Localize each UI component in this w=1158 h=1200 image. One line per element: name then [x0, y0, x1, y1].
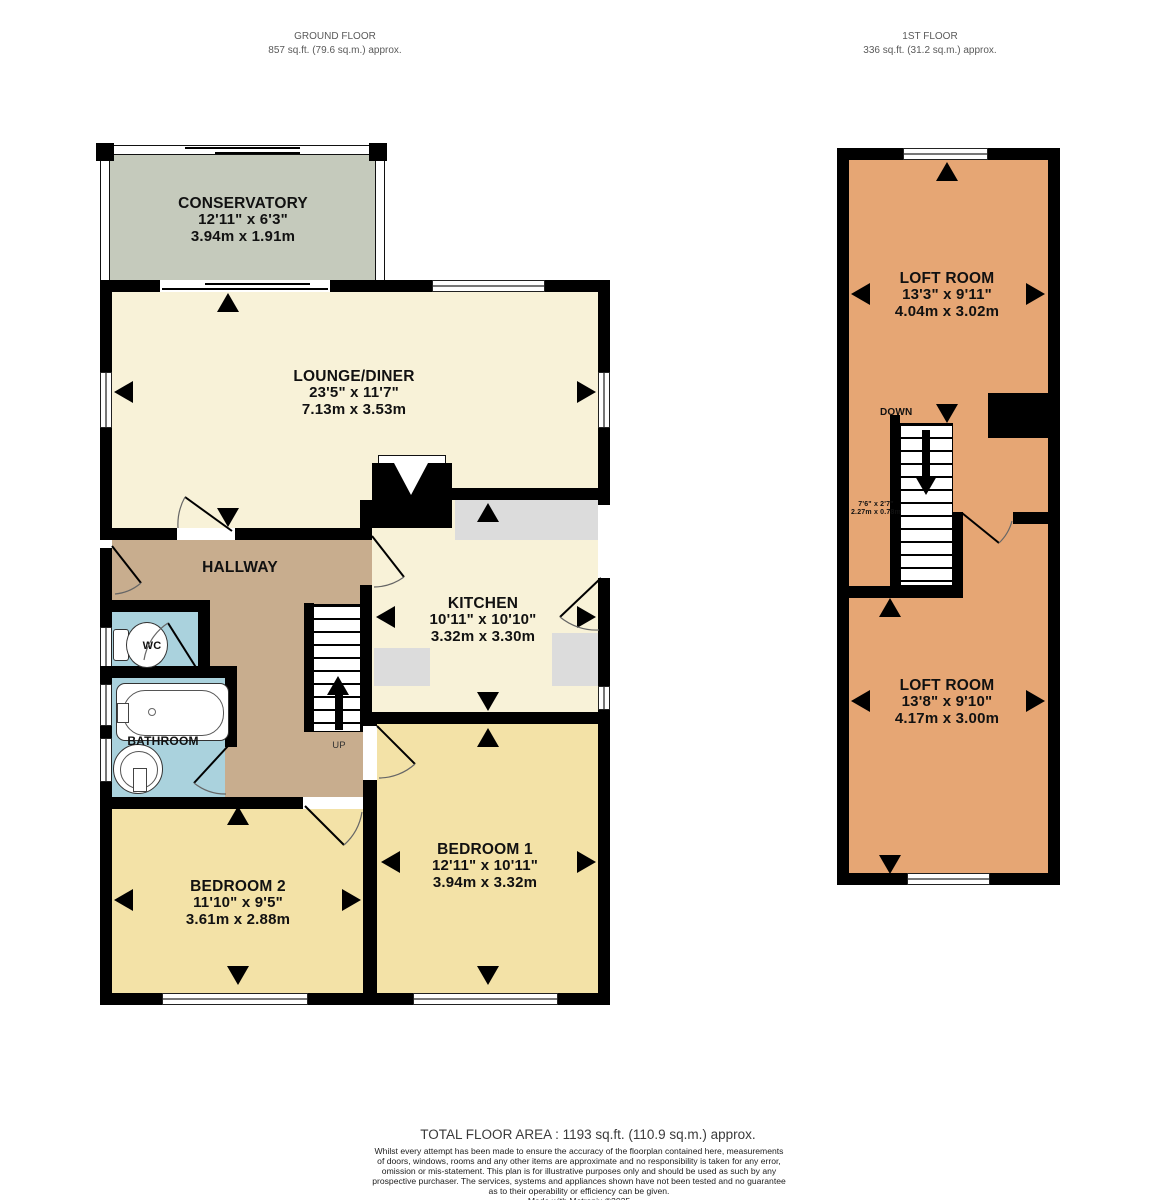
- room-dim-metric: 4.17m x 3.00m: [817, 711, 1077, 728]
- arrow-left-icon: [381, 851, 400, 873]
- wall: [450, 488, 598, 500]
- disclaimer-line: omission or mis-statement. This plan is …: [229, 1166, 929, 1176]
- window: [100, 372, 112, 428]
- back-door-opening: [598, 505, 610, 578]
- room-dim-metric: 4.04m x 3.02m: [817, 304, 1077, 321]
- up-label: UP: [322, 741, 356, 751]
- kitchen-counter: [374, 648, 430, 686]
- window: [903, 148, 988, 160]
- wall: [360, 500, 372, 534]
- sliding-door-line: [162, 288, 328, 290]
- arrow-right-icon: [342, 889, 361, 911]
- loft-stair-dim: 7'6" x 2'7" 2.27m x 0.78m: [838, 501, 914, 516]
- window: [598, 686, 610, 710]
- wall: [100, 600, 210, 612]
- arrow-right-icon: [1026, 690, 1045, 712]
- arrow-down-icon: [915, 476, 937, 495]
- total-floor-area: TOTAL FLOOR AREA : 1193 sq.ft. (110.9 sq…: [288, 1127, 888, 1142]
- window-mullion: [215, 152, 300, 154]
- floorplan-canvas: GROUND FLOOR 857 sq.ft. (79.6 sq.m.) app…: [0, 0, 1158, 1200]
- arrow-up-icon: [217, 293, 239, 312]
- bath-drain-icon: [148, 708, 156, 716]
- arrow-left-icon: [376, 606, 395, 628]
- room-dim-imperial: 11'10" x 9'5": [108, 895, 368, 912]
- conservatory-window-wall: [375, 145, 385, 292]
- room-name: BEDROOM 2: [108, 878, 368, 895]
- arrow-up-icon: [477, 503, 499, 522]
- credit-line: Made with Metropix ©2025: [229, 1196, 929, 1200]
- wall: [100, 666, 237, 678]
- stair-dim-imperial: 7'6" x 2'7": [838, 501, 914, 509]
- hallway-label: HALLWAY: [110, 559, 370, 576]
- first-floor-title: 1ST FLOOR: [730, 30, 1130, 44]
- stair-dim-metric: 2.27m x 0.78m: [838, 509, 914, 517]
- window: [598, 372, 610, 428]
- wall: [849, 586, 963, 598]
- ground-floor-area: 857 sq.ft. (79.6 sq.m.) approx.: [135, 44, 535, 58]
- room-dim-imperial: 12'11" x 6'3": [113, 212, 373, 229]
- room-dim-metric: 3.61m x 2.88m: [108, 912, 368, 929]
- wc-label: WC: [132, 640, 172, 652]
- window: [432, 280, 545, 292]
- down-label: DOWN: [880, 407, 936, 418]
- arrow-down-icon: [879, 855, 901, 874]
- bathroom-label: BATHROOM: [113, 735, 213, 748]
- sliding-door-line: [205, 283, 310, 285]
- window: [100, 738, 112, 782]
- window-mullion: [185, 147, 300, 149]
- arrow-down-icon: [217, 508, 239, 527]
- window: [162, 993, 308, 1005]
- first-floor-header: 1ST FLOOR 336 sq.ft. (31.2 sq.m.) approx…: [730, 30, 1130, 57]
- arrow-down-icon: [936, 404, 958, 423]
- door-opening: [177, 528, 235, 540]
- lounge-label: LOUNGE/DINER 23'5" x 11'7" 7.13m x 3.53m: [224, 368, 484, 418]
- door-opening: [303, 797, 363, 809]
- bath-taps-icon: [117, 703, 129, 723]
- arrow-up-icon: [936, 162, 958, 181]
- room-name: CONSERVATORY: [113, 195, 373, 212]
- window: [413, 993, 558, 1005]
- room-dim-imperial: 23'5" x 11'7": [224, 385, 484, 402]
- loft-chimney: [988, 393, 1048, 438]
- arrow-down-icon: [477, 966, 499, 985]
- window: [907, 873, 990, 885]
- arrow-up-icon: [327, 676, 349, 695]
- chimney-notch: [394, 463, 428, 495]
- wall: [837, 148, 849, 885]
- arrow-up-icon: [477, 728, 499, 747]
- arrow-up-icon: [227, 806, 249, 825]
- arrow-right-icon: [1026, 283, 1045, 305]
- disclaimer-line: prospective purchaser. The services, sys…: [229, 1176, 929, 1186]
- stair-arrow-stem: [335, 694, 343, 730]
- arrow-left-icon: [851, 283, 870, 305]
- room-dim-metric: 3.94m x 1.91m: [113, 229, 373, 246]
- sink-pedestal-icon: [133, 768, 147, 792]
- stair-arrow-stem: [922, 430, 930, 478]
- bedroom2-label: BEDROOM 2 11'10" x 9'5" 3.61m x 2.88m: [108, 878, 368, 928]
- room-dim-metric: 3.94m x 3.32m: [355, 875, 615, 892]
- arrow-left-icon: [114, 889, 133, 911]
- arrow-up-icon: [879, 598, 901, 617]
- arrow-down-icon: [477, 692, 499, 711]
- arrow-right-icon: [577, 606, 596, 628]
- disclaimer-line: of doors, windows, rooms and any other i…: [229, 1156, 929, 1166]
- conservatory-window-wall: [100, 145, 110, 292]
- arrow-right-icon: [577, 851, 596, 873]
- ground-floor-header: GROUND FLOOR 857 sq.ft. (79.6 sq.m.) app…: [135, 30, 535, 57]
- wall: [1013, 512, 1048, 524]
- ground-floor-title: GROUND FLOOR: [135, 30, 535, 44]
- wall: [100, 528, 372, 540]
- arrow-down-icon: [227, 966, 249, 985]
- window: [100, 627, 112, 668]
- window: [100, 684, 112, 726]
- room-dim-metric: 7.13m x 3.53m: [224, 402, 484, 419]
- conservatory-opening: [160, 280, 330, 292]
- first-floor-area: 336 sq.ft. (31.2 sq.m.) approx.: [730, 44, 1130, 58]
- room-name: LOUNGE/DINER: [224, 368, 484, 385]
- arrow-right-icon: [577, 381, 596, 403]
- wall: [198, 612, 210, 666]
- arrow-left-icon: [114, 381, 133, 403]
- disclaimer-line: Whilst every attempt has been made to en…: [229, 1146, 929, 1156]
- disclaimer-line: as to their operability or efficiency ca…: [229, 1186, 929, 1196]
- conservatory-label: CONSERVATORY 12'11" x 6'3" 3.94m x 1.91m: [113, 195, 373, 245]
- door-opening: [363, 726, 377, 780]
- arrow-left-icon: [851, 690, 870, 712]
- wall: [1048, 148, 1060, 885]
- conservatory-corner-post: [96, 143, 114, 161]
- room-dim-metric: 3.32m x 3.30m: [353, 629, 613, 646]
- conservatory-corner-post: [369, 143, 387, 161]
- wall: [363, 712, 598, 724]
- bathtub-inner-icon: [123, 690, 224, 736]
